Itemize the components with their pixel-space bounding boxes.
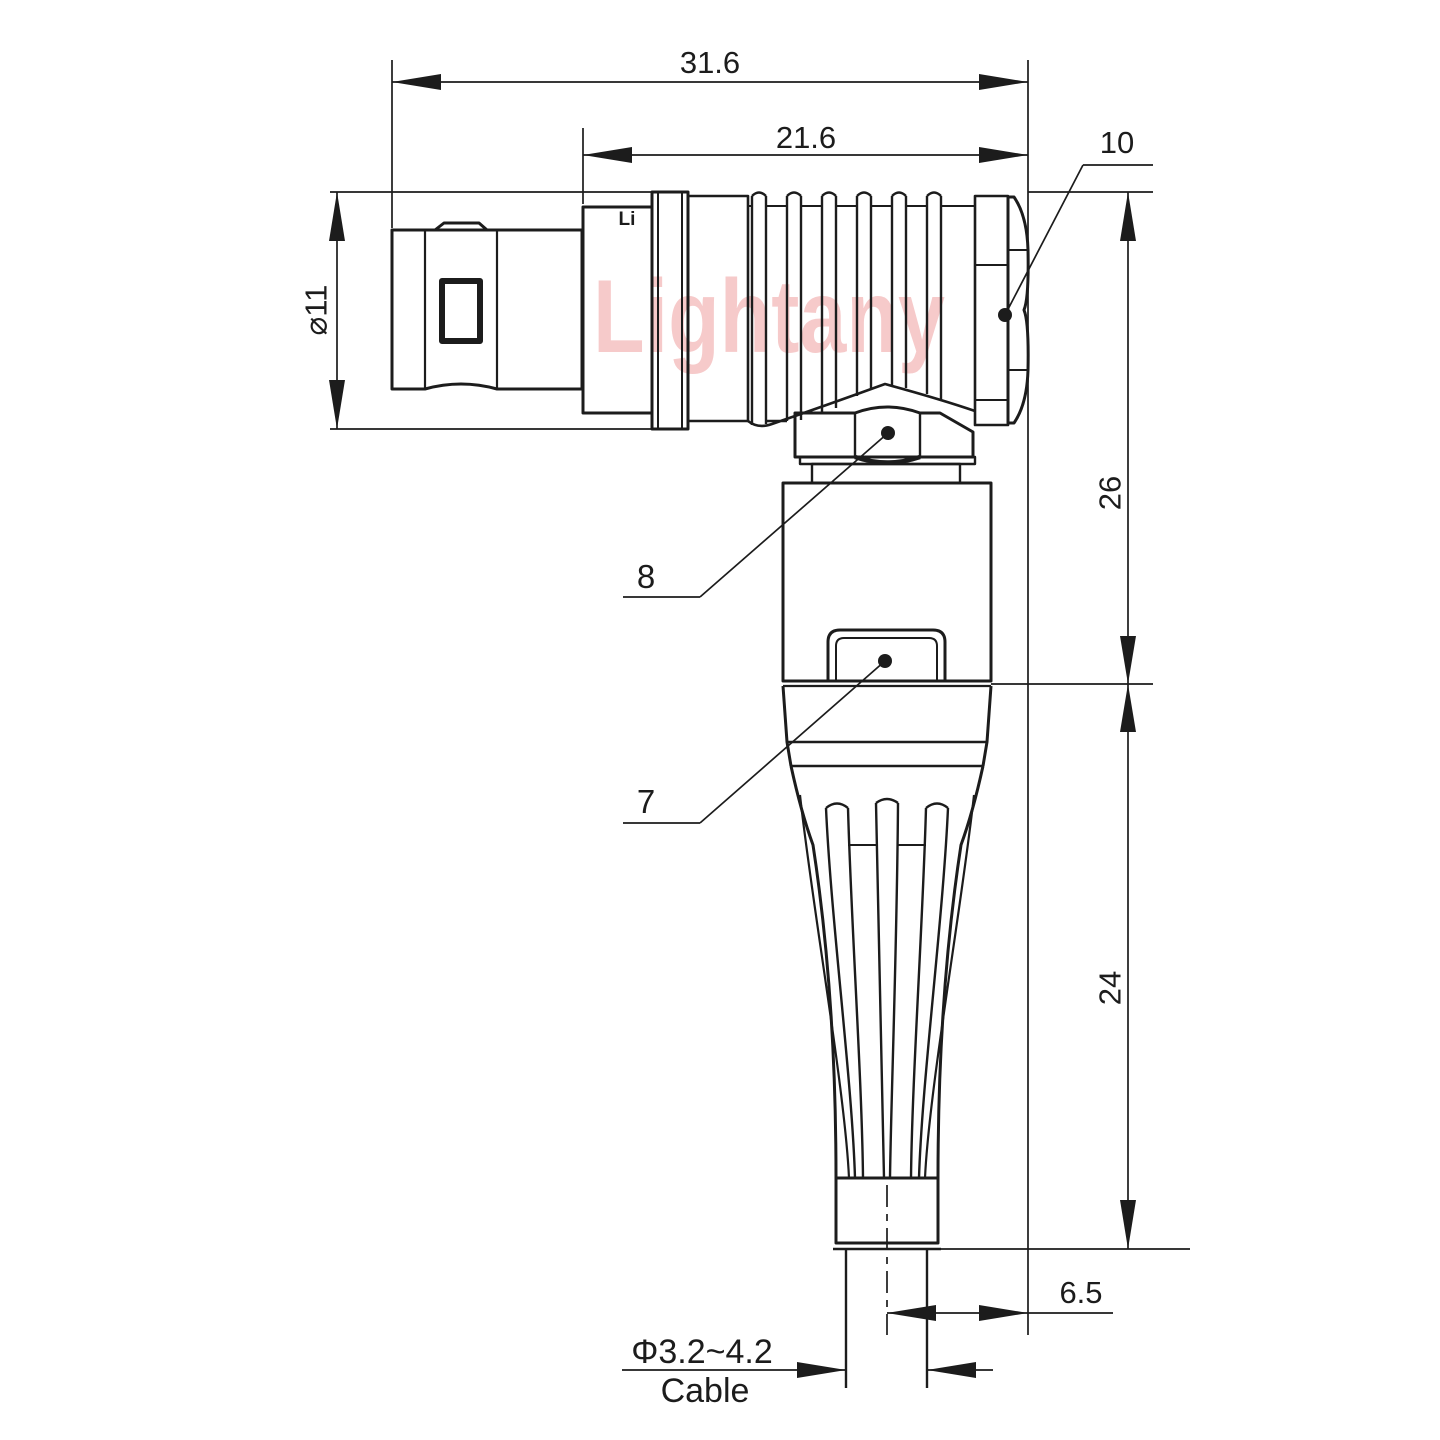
dim-height-lower: 24 (1093, 971, 1128, 1005)
dim-cable-diameter: Φ3.2~4.2 (631, 1333, 773, 1371)
leader-dot-elbow-nut (881, 426, 895, 440)
dim-overall-length: 31.6 (680, 45, 740, 80)
technical-drawing: Lightany Li 31.6 21.6 ⌀11 10 26 (0, 0, 1440, 1440)
dim-cable-offset: 6.5 (1059, 1275, 1102, 1310)
label-hex-cap: 10 (1100, 125, 1134, 160)
dim-cable-label: Cable (661, 1372, 750, 1410)
dim-height-upper: 26 (1093, 476, 1128, 510)
leader-dot-latch (878, 654, 892, 668)
drawing-page: Lightany Li 31.6 21.6 ⌀11 10 26 (0, 0, 1440, 1440)
leader-dot-hex-cap (998, 308, 1012, 322)
dim-body-length: 21.6 (776, 120, 836, 155)
label-release-latch: 7 (637, 783, 655, 820)
label-elbow-nut: 8 (637, 558, 655, 595)
dim-shell-diameter: ⌀11 (299, 285, 334, 336)
sleeve-logo-mark: Li (619, 209, 636, 230)
